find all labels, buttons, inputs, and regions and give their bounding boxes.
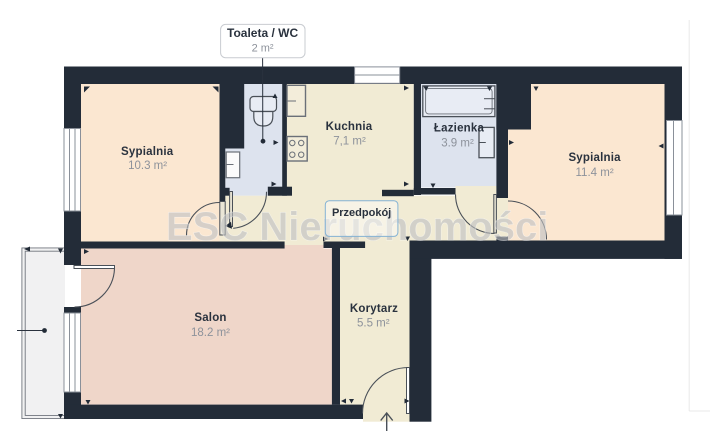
svg-text:Toaleta / WC: Toaleta / WC [227, 26, 298, 40]
svg-text:Łazienka: Łazienka [434, 123, 485, 135]
svg-text:2 m²: 2 m² [252, 43, 274, 55]
svg-text:Kuchnia: Kuchnia [326, 121, 373, 133]
svg-text:Korytarz: Korytarz [350, 303, 398, 315]
svg-text:5.5 m²: 5.5 m² [357, 318, 390, 330]
svg-text:3.9 m²: 3.9 m² [441, 137, 474, 149]
svg-text:Salon: Salon [194, 312, 226, 324]
svg-text:18.2 m²: 18.2 m² [191, 327, 230, 339]
svg-text:7,1 m²: 7,1 m² [333, 135, 366, 147]
svg-text:Sypialnia: Sypialnia [568, 152, 621, 164]
svg-text:Sypialnia: Sypialnia [121, 146, 174, 158]
svg-text:Przedpokój: Przedpokój [332, 207, 391, 219]
svg-text:10.3 m²: 10.3 m² [128, 160, 167, 172]
svg-text:11.4 m²: 11.4 m² [576, 167, 614, 179]
